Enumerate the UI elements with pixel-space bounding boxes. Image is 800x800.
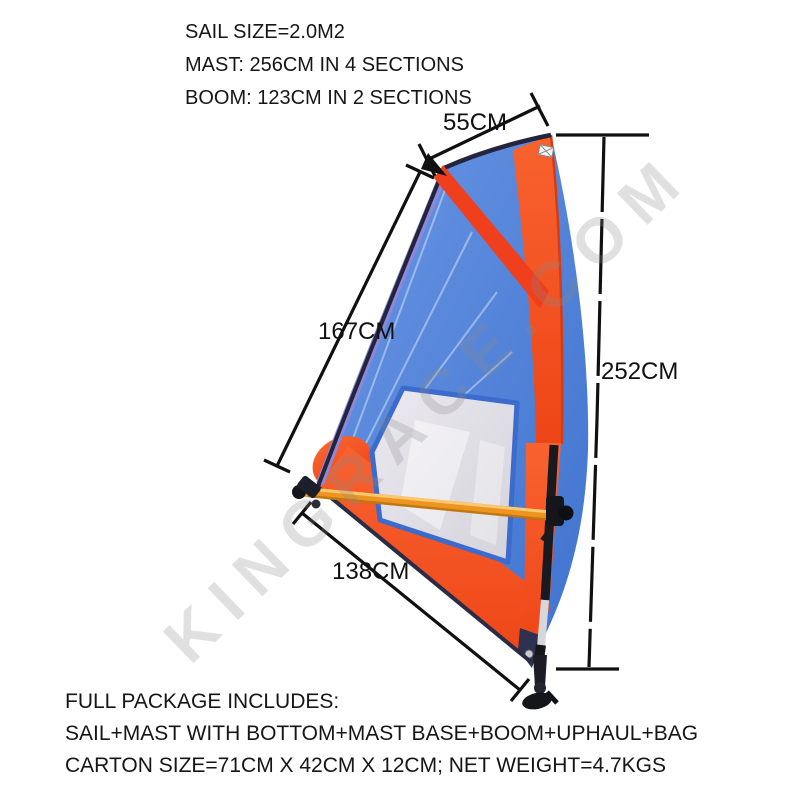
- spec-mast: MAST: 256CM IN 4 SECTIONS: [185, 49, 472, 82]
- package-title: FULL PACKAGE INCLUDES:: [65, 686, 698, 718]
- package-carton: CARTON SIZE=71CM X 42CM X 12CM; NET WEIG…: [65, 750, 698, 782]
- dimension-label-head-width: 55CM: [443, 109, 507, 137]
- mast-lower-white-section: [541, 600, 545, 647]
- spec-block: SAIL SIZE=2.0M2 MAST: 256CM IN 4 SECTION…: [185, 16, 472, 115]
- dimension-label-foot: 138CM: [332, 558, 409, 586]
- spec-boom: BOOM: 123CM IN 2 SECTIONS: [185, 82, 472, 115]
- dimension-label-leech: 167CM: [318, 318, 395, 346]
- package-contents: SAIL+MAST WITH BOTTOM+MAST BASE+BOOM+UPH…: [65, 718, 698, 750]
- sail-illustration: [0, 0, 800, 800]
- dimension-label-height: 252CM: [601, 358, 678, 386]
- head-patch: [538, 145, 554, 158]
- package-block: FULL PACKAGE INCLUDES: SAIL+MAST WITH BO…: [65, 686, 698, 782]
- spec-sail-size: SAIL SIZE=2.0M2: [185, 16, 472, 49]
- product-image: KINGRACE.COM SAIL SIZE=2.0M2 MAST: 256CM…: [0, 0, 800, 800]
